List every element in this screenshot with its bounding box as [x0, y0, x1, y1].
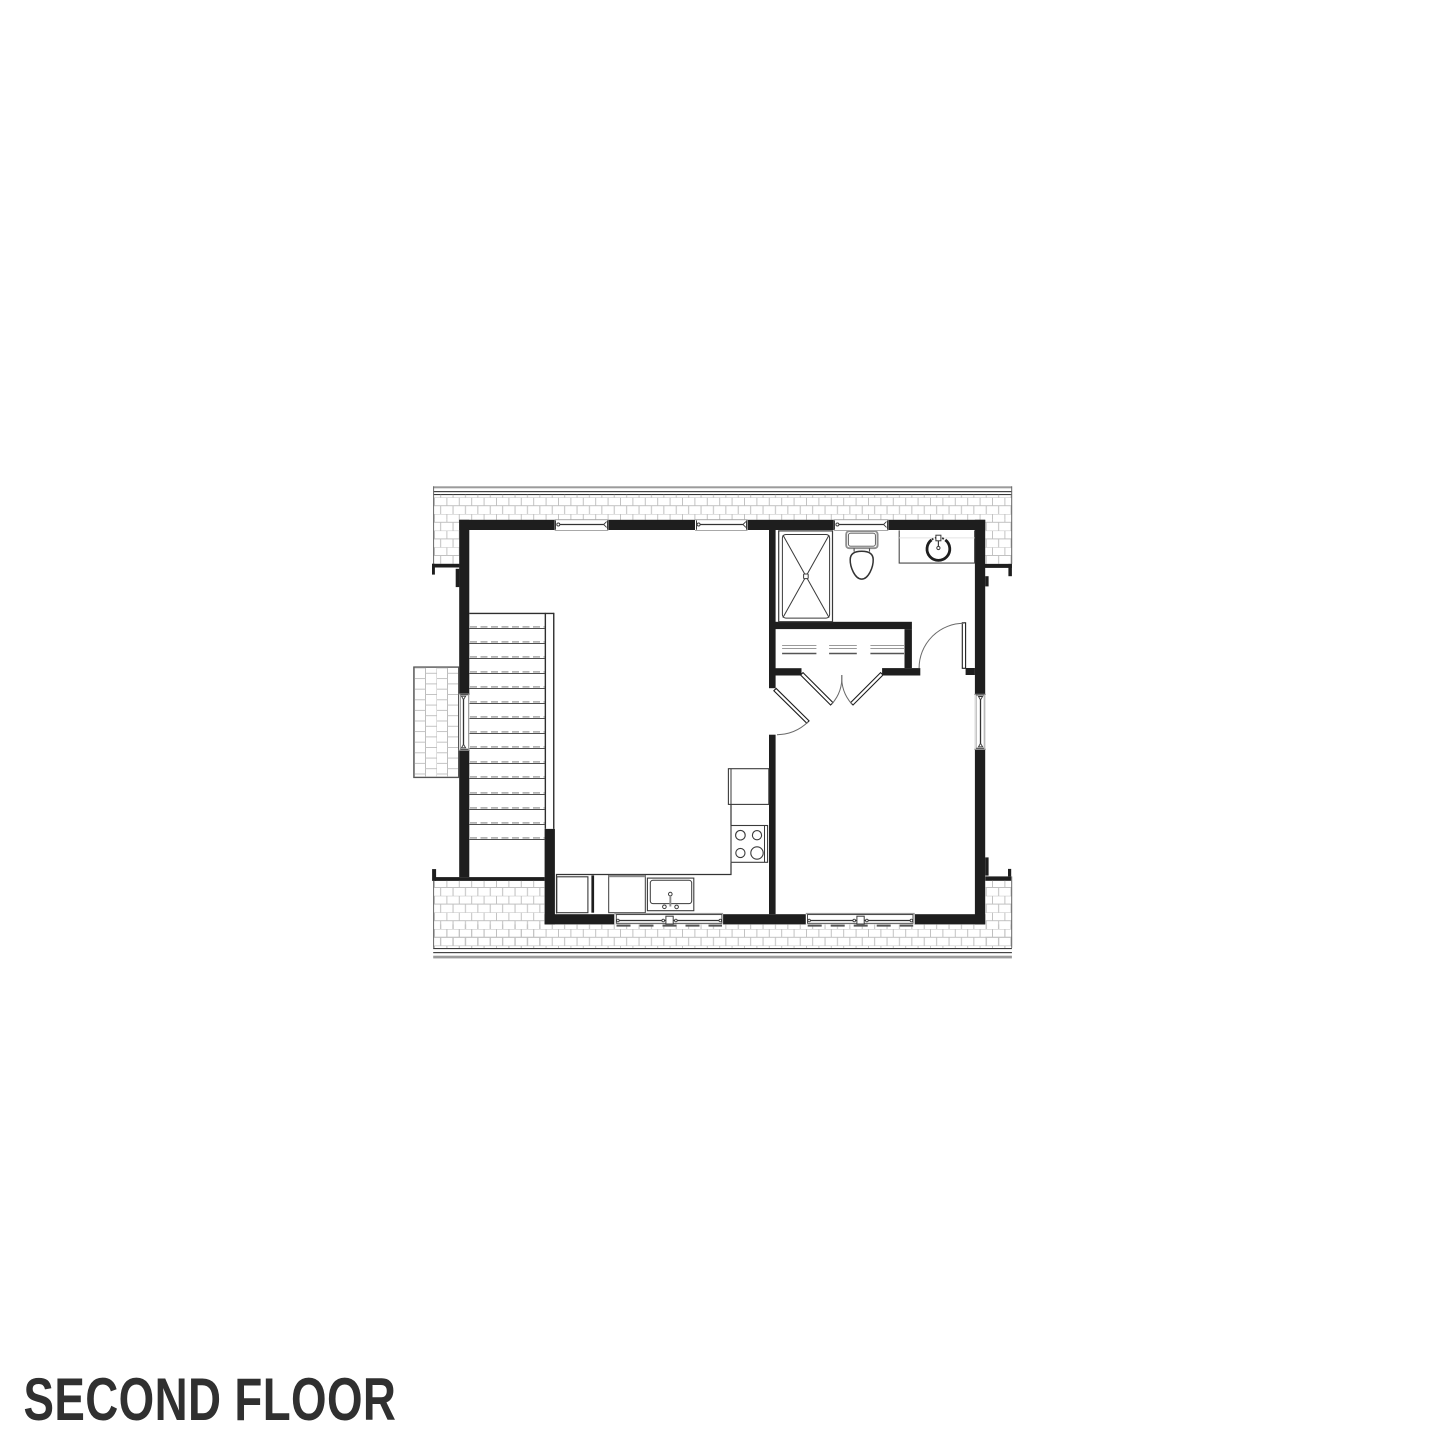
svg-text:SECOND FLOOR: SECOND FLOOR [24, 1367, 397, 1433]
